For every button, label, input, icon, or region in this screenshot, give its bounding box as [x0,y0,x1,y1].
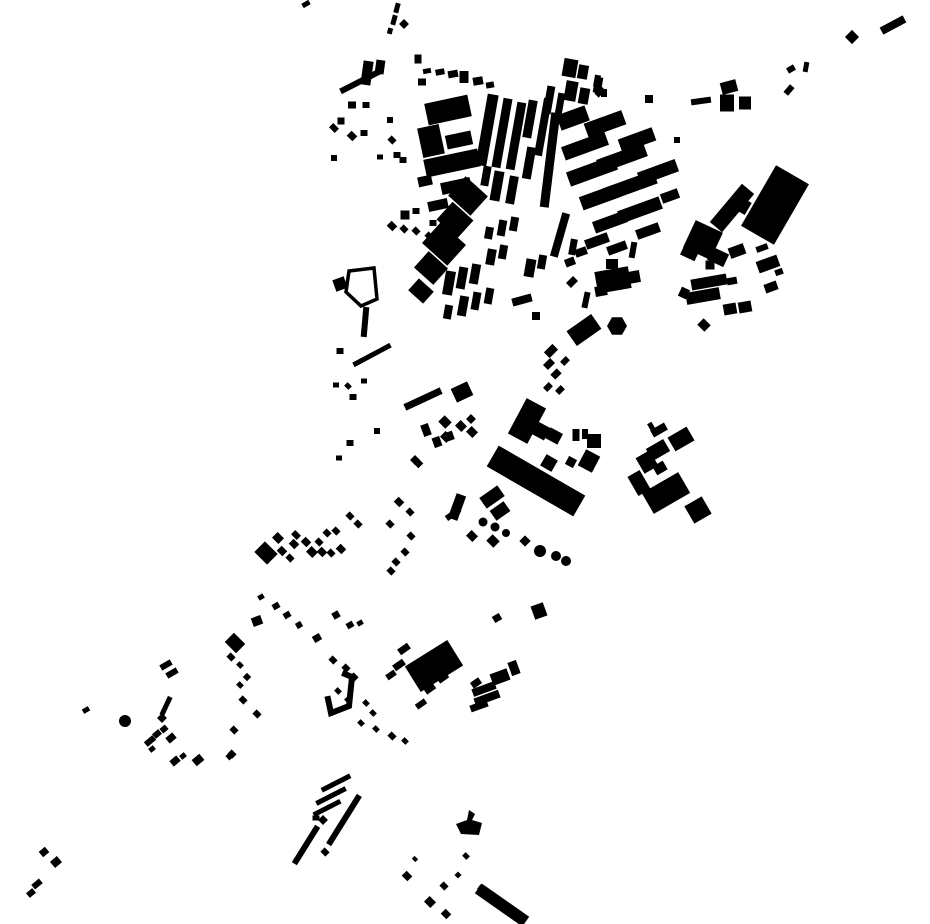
building-footprint [226,652,235,661]
building-footprint [31,878,43,889]
building-footprint [321,774,352,793]
building-footprint [507,660,520,676]
building-footprint [82,706,91,714]
building-footprint [401,211,410,220]
building-footprint [314,537,323,546]
building-footprint [706,261,715,270]
building-footprint [301,0,310,8]
building-footprint [165,667,178,678]
building-footprint [165,732,176,743]
building-footprint [466,530,478,542]
map-canvas [0,0,930,924]
building-footprint [401,737,409,745]
building-footprint [347,131,358,142]
building-footprint [400,157,407,163]
building-footprint [560,356,570,366]
building-footprint [606,259,618,269]
building-footprint [285,553,294,562]
building-footprint [331,610,341,620]
building-footprint [555,93,566,116]
building-footprint [291,530,301,540]
building-footprint [317,547,328,558]
building-footprint [362,699,370,707]
building-footprint [326,794,362,846]
building-footprint [313,816,320,821]
round-building-footprint [551,551,561,561]
building-footprint [157,713,167,723]
building-footprint [405,640,463,692]
building-footprint [645,95,653,103]
building-footprint [387,117,393,123]
building-footprint [353,519,362,528]
building-footprint [530,602,547,620]
building-footprint [511,294,532,307]
building-footprint [424,95,472,126]
building-footprint [160,696,173,716]
building-footprint [726,277,737,286]
building-footprint [635,222,661,240]
building-footprint [405,507,414,516]
building-footprint [345,511,354,520]
building-footprint [356,619,364,626]
building-footprint [320,847,329,856]
building-footprint [159,659,172,670]
building-footprint [460,71,469,83]
building-footprint [443,304,453,319]
building-footprint [412,856,418,862]
building-footprint [331,155,337,161]
building-footprint [803,62,810,73]
building-footprint [392,659,406,672]
building-footprint [486,81,495,88]
building-footprint [347,440,354,446]
building-footprint [522,146,536,179]
figure-ground-map [0,0,930,924]
building-footprint [584,232,610,250]
round-building-footprint [479,518,488,527]
building-footprint [394,497,405,508]
building-footprint [394,152,401,158]
building-footprint [417,124,445,158]
building-footprint [544,344,558,358]
u-shaped-building-footprint [328,674,352,713]
building-footprint [345,621,354,630]
building-footprint [254,541,277,564]
building-footprint [369,709,377,717]
building-footprint [417,175,433,188]
building-footprint [720,79,739,95]
building-footprint [229,725,238,734]
round-building-footprint [561,556,571,566]
building-footprint [179,752,187,760]
building-footprint [386,566,395,575]
building-footprint [413,208,420,214]
round-building-footprint [534,545,546,557]
building-footprint [403,387,442,410]
building-footprint [328,655,337,664]
building-footprint [485,248,497,265]
building-footprint [563,80,578,102]
building-footprint [159,724,168,733]
building-footprint [372,725,380,733]
building-footprint [543,358,555,370]
building-footprint [336,544,347,555]
building-footprint [408,278,434,303]
building-footprint [774,268,784,276]
building-footprint [519,535,530,546]
building-footprint [399,19,409,29]
building-footprint [581,292,590,309]
building-footprint [577,64,589,80]
building-footprint [236,681,244,689]
building-footprint [466,414,476,424]
building-footprint [333,383,339,388]
building-footprint [540,454,558,472]
building-footprint [455,420,467,432]
building-footprint [573,429,580,441]
building-footprint [252,709,261,718]
building-footprint [441,909,452,920]
building-footprint [447,70,458,79]
building-footprint [377,155,383,160]
building-footprint [457,295,469,316]
building-footprint [451,381,474,402]
building-footprint [411,226,420,235]
building-footprint [397,643,411,656]
building-footprint [399,224,408,233]
hexagonal-building-footprint [607,317,627,334]
building-footprint [454,871,461,878]
building-footprint [387,135,396,144]
building-footprint [532,312,540,320]
building-footprint [462,852,470,860]
building-footprint [470,291,481,310]
building-footprint [555,385,565,395]
building-footprint [497,219,508,236]
building-footprint [424,896,436,908]
building-footprint [148,745,156,753]
building-footprint [442,270,456,295]
building-footprint [684,496,711,523]
building-footprint [728,243,747,259]
building-footprint [329,123,339,133]
building-footprint [594,285,608,297]
building-footprint [243,673,251,681]
building-footprint [565,456,577,468]
building-footprint [400,547,409,556]
building-footprint [361,307,370,337]
building-footprint [402,871,413,882]
building-footprint [606,240,628,255]
building-footprint [738,300,753,313]
building-footprint [352,343,391,367]
building-footprint [642,472,690,514]
building-footprint [486,534,499,547]
building-footprint [566,276,578,288]
building-footprint [326,548,335,557]
building-footprint [562,58,579,78]
building-footprint [387,731,396,740]
building-footprint [543,382,553,392]
building-footprint [277,546,288,557]
building-footprint [50,856,62,868]
building-footprint [225,633,246,654]
building-footprint [406,531,415,540]
building-footprint [387,221,398,232]
building-footprint [489,170,504,201]
building-footprint [691,97,712,106]
building-footprint [550,368,561,379]
round-building-footprint [491,523,500,532]
building-footprint [564,257,576,268]
building-footprint [357,719,365,727]
building-footprint [484,287,495,304]
building-footprint [312,633,322,643]
building-footprint [880,15,907,34]
building-footprint [685,287,721,305]
building-footprint [627,270,641,284]
building-footprint [697,318,710,331]
building-footprint [301,537,312,548]
building-footprint [720,95,734,112]
building-footprint [763,281,778,294]
building-footprint [498,244,508,259]
building-footprint [374,428,380,434]
building-footprint [390,15,397,26]
building-footprint [667,427,694,452]
building-footprint [509,216,519,231]
building-footprint [430,220,437,226]
round-building-footprint [502,529,510,537]
building-footprint [469,263,481,284]
building-footprint [257,593,265,600]
building-footprint [169,755,180,766]
building-footprint [445,130,473,149]
building-footprint [472,76,483,86]
building-footprint [393,3,400,14]
building-footprint [484,226,494,239]
building-footprint [271,602,280,611]
building-footprint [435,68,445,75]
building-footprint [238,695,247,704]
building-footprint [334,687,342,695]
building-footprint [466,426,478,438]
building-footprint [295,621,303,629]
building-footprint [438,415,451,428]
building-footprint [289,539,300,550]
building-footprint [350,394,357,400]
building-footprint [272,532,284,544]
round-building-footprint [119,715,131,727]
building-footprint [629,242,638,259]
building-footprint [561,132,609,161]
building-footprint [420,423,432,437]
building-footprint [361,379,367,384]
building-footprint [550,212,570,257]
building-footprint [723,302,738,315]
building-footprint [387,27,393,34]
building-footprint [587,434,601,448]
building-footprint [292,825,320,865]
building-footprint [318,815,328,825]
irregular-building-footprint [456,810,482,835]
building-footprint [783,84,794,96]
building-footprint [337,348,344,354]
building-footprint [391,557,400,566]
building-footprint [456,266,469,289]
outlined-building-footprint [346,268,377,306]
building-footprint [566,155,618,186]
building-footprint [282,611,291,620]
building-footprint [39,847,50,858]
building-footprint [786,64,796,73]
building-footprint [236,661,244,669]
building-footprint [579,184,621,211]
building-footprint [344,382,352,390]
building-footprint [338,118,345,125]
building-footprint [492,613,502,623]
building-footprint [26,888,36,898]
building-footprint [578,87,591,104]
building-footprint [348,102,356,109]
building-footprint [480,165,491,186]
building-footprint [415,698,427,709]
building-footprint [741,165,809,245]
building-footprint [322,528,331,537]
building-footprint [755,243,768,253]
building-footprint [674,137,680,143]
building-footprint [524,258,537,277]
building-footprint [578,449,601,472]
building-footprint [845,30,859,44]
building-footprint [385,670,397,681]
building-footprint [315,786,347,805]
building-footprint [363,102,370,108]
building-footprint [361,130,368,136]
building-footprint [306,546,318,558]
building-footprint [567,314,602,346]
building-footprint [336,456,342,461]
building-footprint [385,519,394,528]
building-footprint [339,68,383,94]
building-footprint [592,211,628,234]
building-footprint [192,754,205,767]
building-footprint [251,615,263,627]
building-footprint [418,79,426,86]
building-footprint [439,881,448,890]
building-footprint [537,254,547,269]
building-footprint [690,273,727,290]
building-footprint [739,97,751,110]
building-footprint [505,175,519,204]
building-footprint [423,68,432,74]
building-footprint [331,526,340,535]
building-footprint [660,188,680,204]
building-footprint [415,55,422,64]
building-footprint [432,436,443,448]
